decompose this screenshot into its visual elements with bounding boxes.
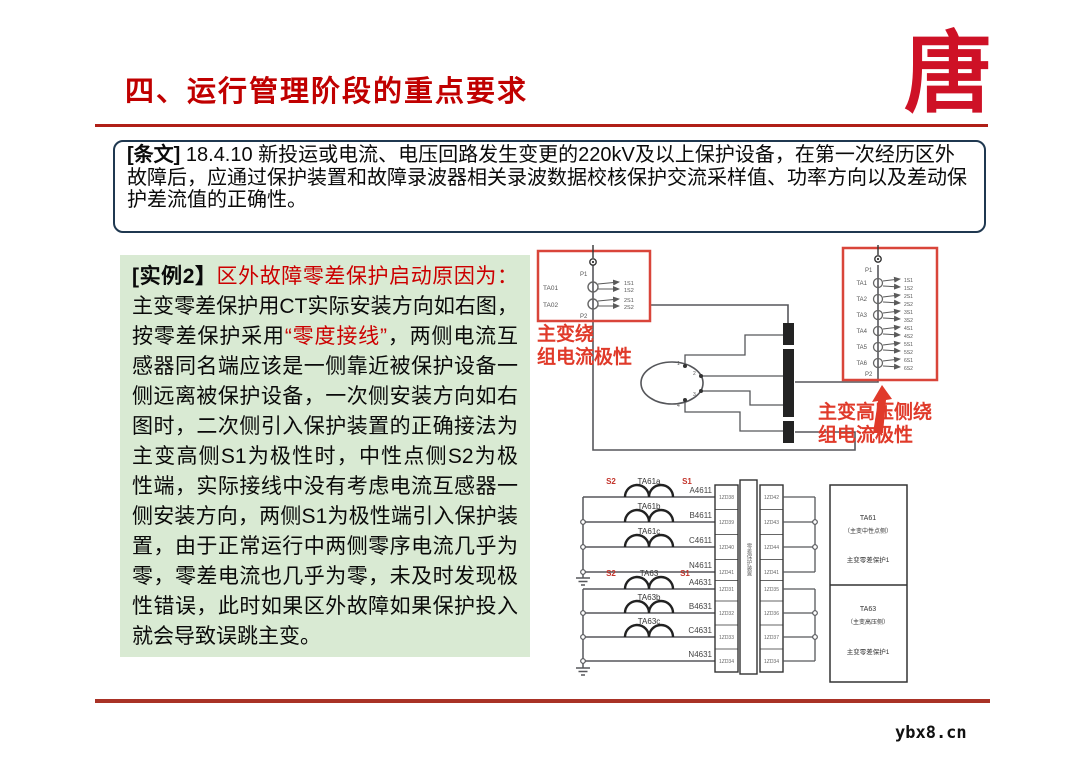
p1-label: P1	[865, 268, 873, 274]
terminal-id: 1ZD42	[764, 495, 779, 501]
ct-terminal-label: 2S1	[624, 298, 634, 304]
wire-label: B4611	[689, 511, 712, 520]
wire-label: C4631	[688, 626, 712, 635]
ct-label: TA63b	[638, 593, 662, 602]
p2-label: P2	[580, 314, 588, 320]
terminal-id: 1ZD40	[719, 545, 734, 551]
polarity-s2-label: S2	[606, 569, 616, 578]
terminal-id: 1ZD39	[719, 520, 734, 526]
p2-label: P2	[865, 372, 873, 378]
bottom-rule	[95, 699, 990, 703]
ct-terminal-label: 3S2	[904, 318, 913, 324]
terminal-id: 1ZD32	[719, 611, 734, 617]
protection-info-box: TA61 （主变中性点侧） 主变零差保护1 TA63 （主变高压侧） 主变零差保…	[830, 485, 907, 682]
winding-terminal-label: 2	[693, 371, 696, 377]
ct-terminal-label: 1S2	[904, 286, 913, 292]
loop-links	[783, 497, 815, 661]
ct-label: TA61a	[638, 477, 662, 486]
info-ct-name: TA61	[860, 515, 876, 522]
hv-ct-row: TA4 4S1 4S2	[856, 326, 913, 340]
winding-terminal-label: 3	[693, 392, 696, 398]
example-box: [实例2】区外故障零差保护启动原因为：主变零差保护用CT实际安装方向如右图，按零…	[120, 255, 530, 657]
terminal-id: 1ZD41	[764, 570, 779, 576]
polarity-s2-label: S2	[606, 477, 616, 486]
example-text-2: ，两侧电流互感器同名端应该是一侧靠近被保护设备一侧远离被保护设备，一次侧安装方向…	[132, 325, 518, 648]
hv-ct-row: TA6 6S1 6S2	[856, 358, 913, 372]
ct-terminal-label: 6S2	[904, 366, 913, 372]
ct-terminal-label: 1S1	[904, 278, 913, 284]
p1-label: P1	[580, 272, 588, 278]
polarity-s1-label: S1	[682, 477, 692, 486]
ct-label: TA6	[856, 361, 867, 367]
caption-line: 组电流极性	[818, 424, 932, 447]
ct-label: TA4	[856, 329, 867, 335]
ct-terminal-label: 2S1	[904, 294, 913, 300]
terminal-block: 1ZD38 1ZD39 1ZD40 1ZD41 1ZD31 1ZD32 1ZD3…	[715, 480, 783, 674]
terminal-id: 1ZD31	[719, 587, 734, 593]
example-red-intro: 区外故障零差保护启动原因为：	[217, 265, 518, 288]
terminal-id: 1ZD33	[719, 635, 734, 641]
wire-label: A4631	[689, 578, 713, 587]
ct-terminal-label: 6S1	[904, 358, 913, 364]
ct-label: TA5	[856, 345, 867, 351]
info-ct-name: TA63	[860, 606, 876, 613]
ct-label: TA63	[640, 569, 659, 578]
ct-terminal-label: 2S2	[904, 302, 913, 308]
ct-label: TA02	[543, 302, 558, 309]
ct-secondary-wiring-diagram: S2 TA61a S1 TA61b TA61c S2 TA63 S1 TA63b…	[535, 458, 1000, 690]
terminal-id: 1ZD41	[719, 570, 734, 576]
polarity-s1-label: S1	[680, 569, 690, 578]
wire-label: N4631	[688, 650, 712, 659]
terminal-id: 1ZD34	[764, 659, 779, 665]
info-protection: 主变零差保护1	[847, 647, 890, 656]
terminal-id: 1ZD34	[719, 659, 734, 665]
example-red-quote: “零度接线”	[285, 325, 387, 348]
datang-logo: 唐	[900, 24, 996, 124]
info-ct-side: （主变中性点侧）	[844, 527, 892, 535]
ct-terminal-label: 5S2	[904, 350, 913, 356]
hv-ct-row: TA2 2S1 2S2	[856, 294, 913, 308]
ct-terminal-label: 1S2	[624, 288, 634, 294]
bushing-bars	[783, 323, 794, 443]
terminal-id: 1ZD37	[764, 635, 779, 641]
winding-terminal-label: 1	[677, 361, 680, 367]
ct-label: TA63c	[638, 617, 661, 626]
terminal-id: 1ZD38	[719, 495, 734, 501]
wire-label: A4611	[689, 486, 712, 495]
ct-coil-labels: S2 TA61a S1 TA61b TA61c S2 TA63 S1 TA63b…	[606, 477, 692, 626]
terminal-id: 1ZD36	[764, 611, 779, 617]
terminal-block-title: 零差保护装置	[746, 543, 753, 577]
clause-box: [条文] 18.4.10 新投运或电流、电压回路发生变更的220kV及以上保护设…	[113, 140, 986, 233]
example-tag: [实例2】	[132, 265, 217, 288]
hv-ct-row: TA5 5S1 5S2	[856, 342, 913, 356]
info-protection: 主变零差保护1	[847, 555, 890, 564]
datang-logo-glyph: 唐	[900, 24, 996, 124]
terminal-id: 1ZD44	[764, 545, 779, 551]
terminal-id: 1ZD43	[764, 520, 779, 526]
ct-terminal-label: 5S1	[904, 342, 913, 348]
transformer-winding-symbol: 1 2 3 4	[641, 361, 703, 409]
hv-ct-row: TA1 1S1 1S2	[856, 278, 913, 292]
ct-label: TA2	[856, 297, 867, 303]
wire-label: C4611	[689, 536, 713, 545]
ct-terminal-label: 4S1	[904, 326, 913, 332]
page-title: 四、运行管理阶段的重点要求	[125, 68, 528, 110]
terminal-id: 1ZD35	[764, 587, 779, 593]
ct-label: TA1	[856, 281, 867, 287]
ct-terminal-label: 1S1	[624, 281, 634, 287]
hv-winding-polarity-caption: 主变高压侧绕 组电流极性	[818, 401, 932, 447]
title-underline	[95, 124, 988, 127]
clause-tag: [条文]	[127, 144, 180, 166]
watermark: ybx8.cn	[895, 723, 967, 743]
ct-label: TA61b	[638, 502, 662, 511]
clause-text: 18.4.10 新投运或电流、电压回路发生变更的220kV及以上保护设备，在第一…	[127, 144, 967, 211]
ct-label: TA3	[856, 313, 867, 319]
caption-line: 组电流极性	[537, 346, 632, 369]
caption-line: 主变绕	[537, 323, 632, 346]
wire-label: N4611	[689, 561, 713, 570]
ct-label: TA61c	[638, 527, 661, 536]
wire-label: B4631	[689, 602, 713, 611]
neutral-side-ct-box: P1 TA01 1S1 1S2 TA02 2S1 2S2 P2	[538, 245, 650, 321]
hv-side-ct-box: P1 TA1 1S1 1S2 TA2 2S1 2S2 TA3 3S1 3S2 T…	[843, 245, 937, 380]
winding-polarity-caption: 主变绕 组电流极性	[537, 323, 632, 369]
caption-line: 主变高压侧绕	[818, 401, 932, 424]
ct-terminal-label: 4S2	[904, 334, 913, 340]
winding-terminal-label: 4	[677, 403, 680, 409]
winding-connection-lines	[685, 335, 783, 431]
ct-terminal-label: 3S1	[904, 310, 913, 316]
hv-ct-row: TA3 3S1 3S2	[856, 310, 913, 324]
ct-terminal-label: 2S2	[624, 305, 634, 311]
info-ct-side: （主变高压侧）	[847, 618, 889, 626]
ct-label: TA01	[543, 285, 558, 292]
